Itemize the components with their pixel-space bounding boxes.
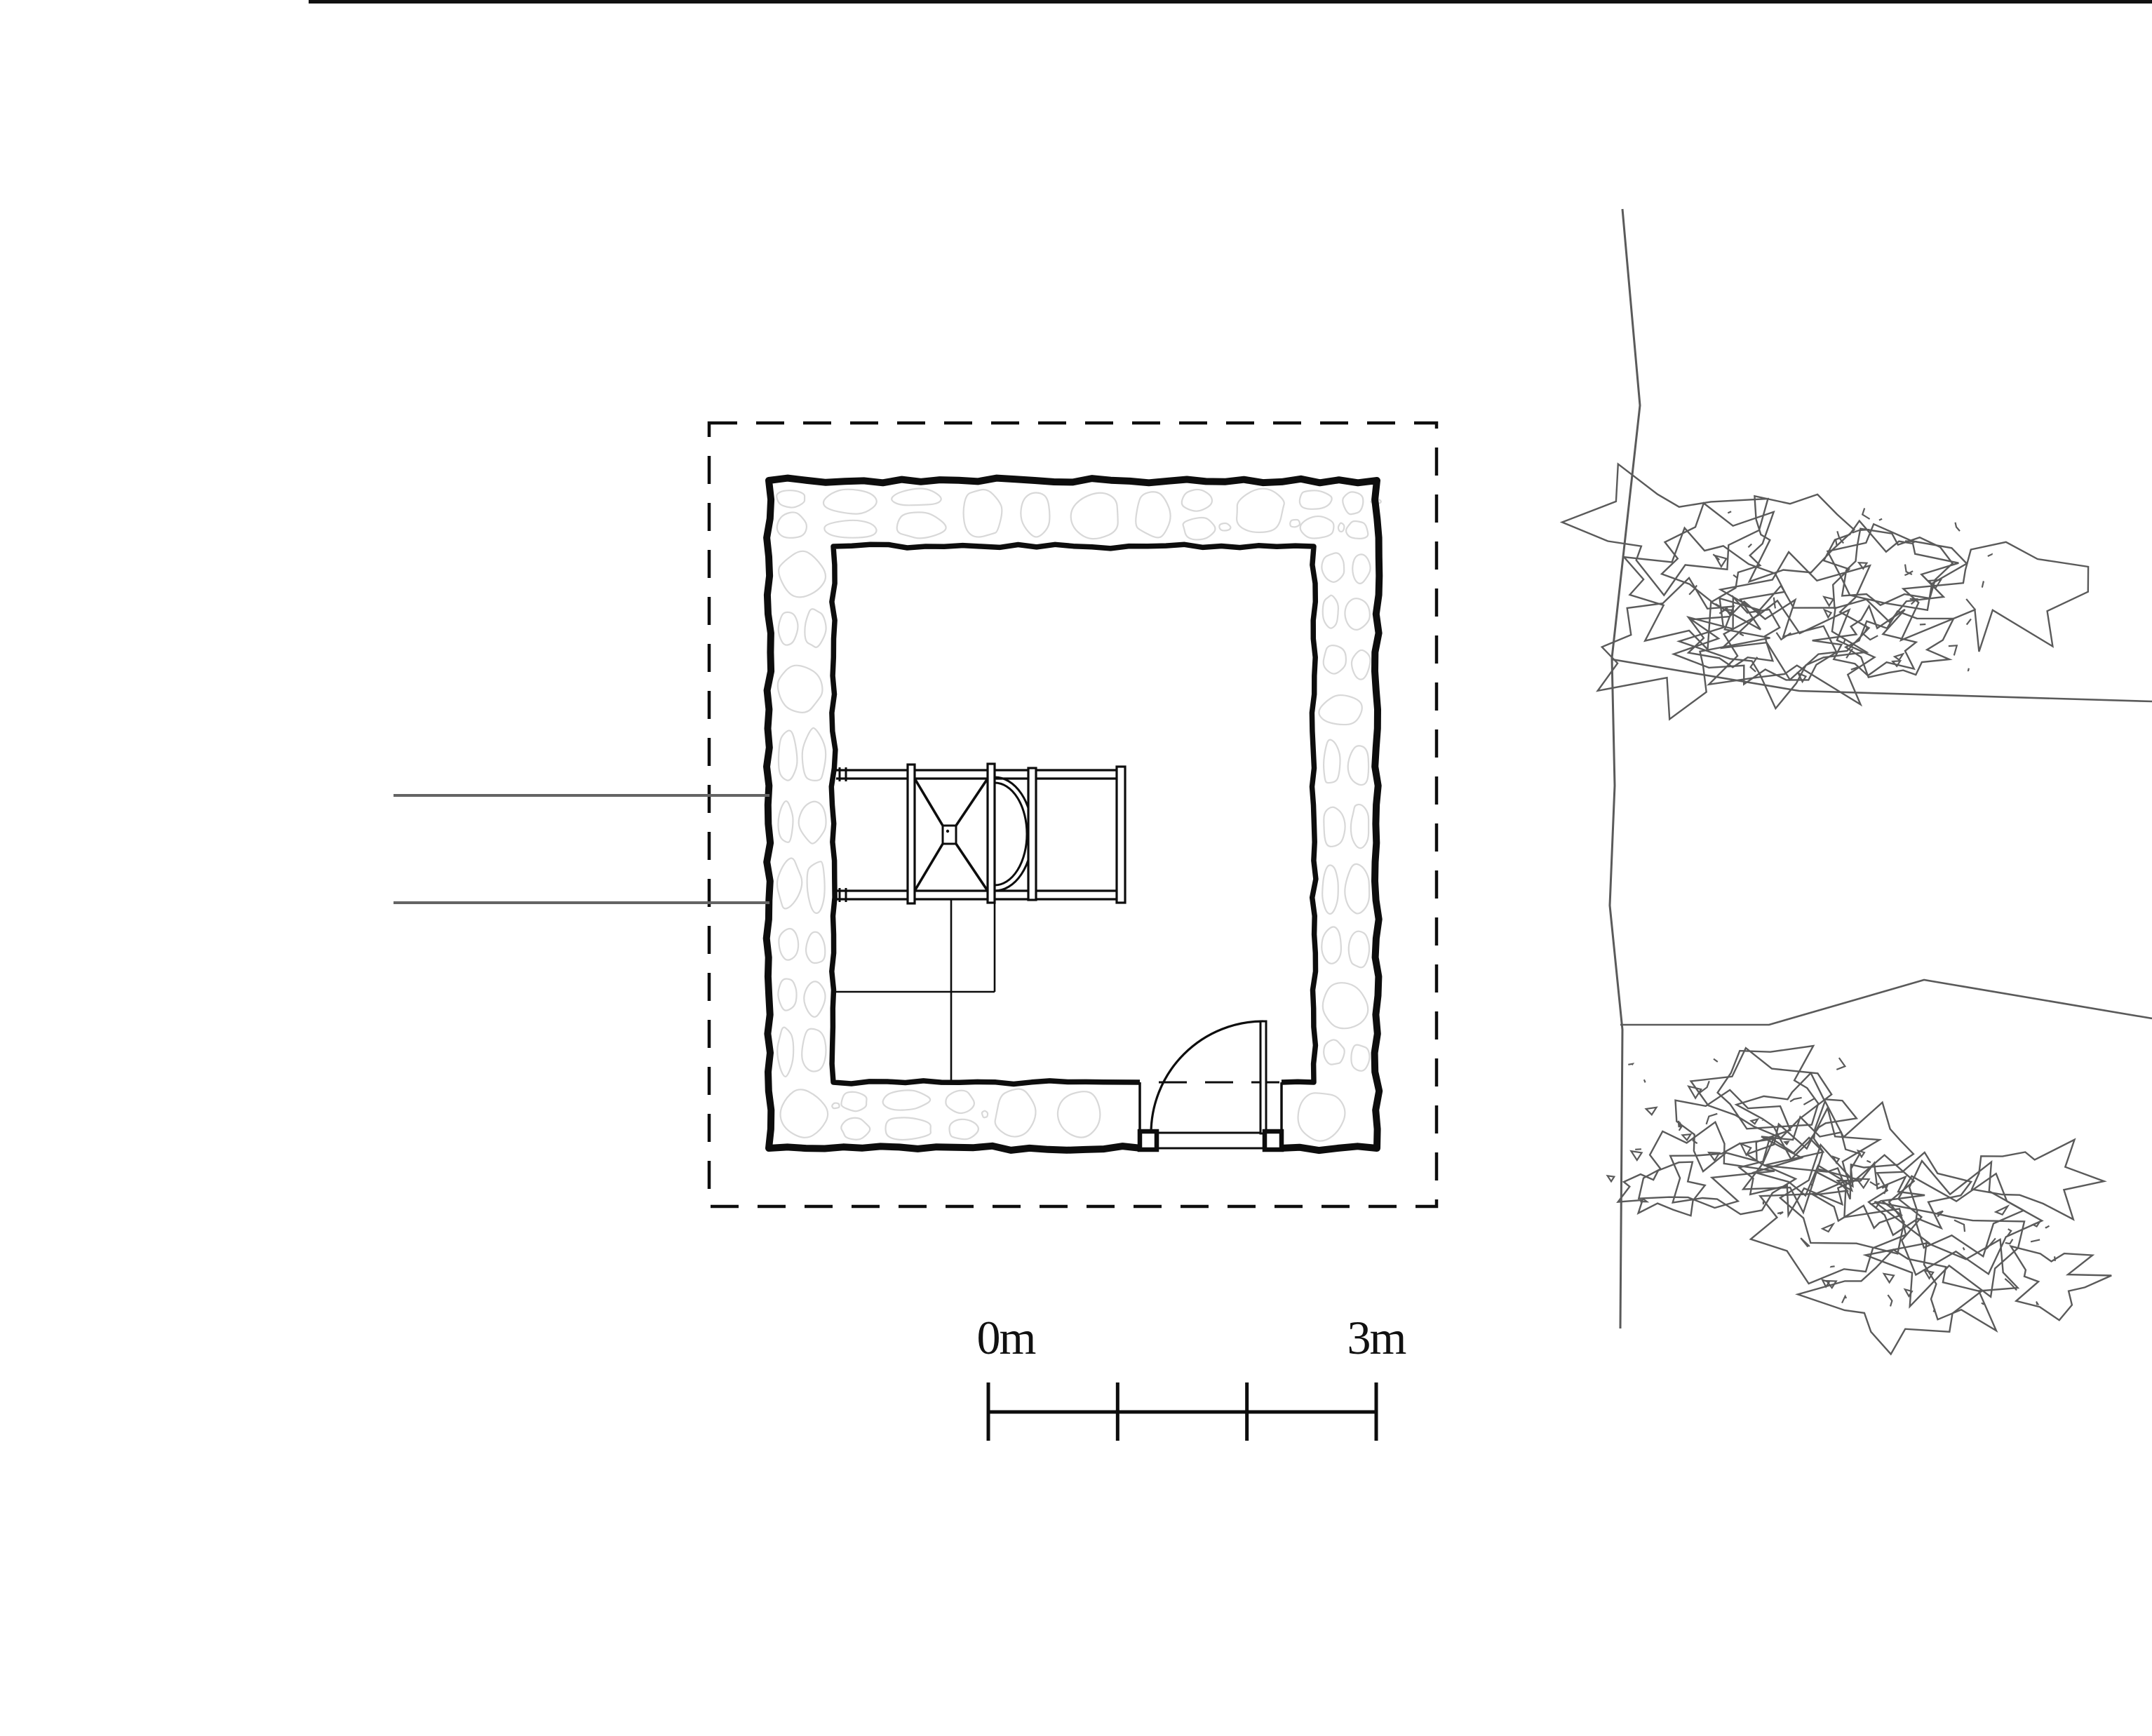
roof-overhang-dashed-outline [709, 423, 1437, 1206]
cross-brace-diagonal [956, 844, 988, 891]
door-swing-arc [1151, 1021, 1263, 1133]
outer-wall-outline [767, 478, 1380, 1151]
scale-label-end: 3m [1347, 1311, 1406, 1364]
daybed-post [908, 765, 915, 903]
drawing-sheet: 0m 3m [0, 0, 2152, 1736]
bush [1562, 464, 2088, 720]
cross-brace-diagonal [915, 779, 943, 826]
door-frame-block [1140, 1131, 1157, 1150]
daybed-post [1117, 767, 1125, 903]
sheet-top-rule [309, 0, 2152, 4]
exterior-path-lines [394, 795, 769, 903]
entry-door [1140, 1021, 1282, 1150]
cross-brace-hub [943, 826, 956, 844]
cross-brace-diagonal [956, 779, 988, 826]
door-frame-block [1265, 1131, 1282, 1150]
floor-step-lines [833, 899, 995, 1082]
cross-brace-diagonal [915, 844, 943, 891]
scale-label-start: 0m [977, 1311, 1036, 1364]
floor-plan-svg: 0m 3m [0, 0, 2152, 1736]
scale-bar [988, 1382, 1376, 1441]
daybed-furniture-plan [836, 764, 1125, 903]
ground-line-lower [1620, 980, 2152, 1025]
door-leaf [1260, 1021, 1266, 1133]
inner-wall-outline [831, 544, 1316, 1084]
bush [1608, 1046, 2112, 1354]
daybed-post [988, 764, 995, 903]
site-boundary [1610, 209, 1640, 1328]
daybed-post [1028, 768, 1036, 900]
vegetation [1562, 464, 2111, 1354]
top-rule-line [309, 0, 2152, 4]
stone-masonry-texture [776, 488, 1381, 1140]
site-boundary-lines [1610, 209, 2152, 1328]
half-round-inner-arc [995, 783, 1027, 885]
